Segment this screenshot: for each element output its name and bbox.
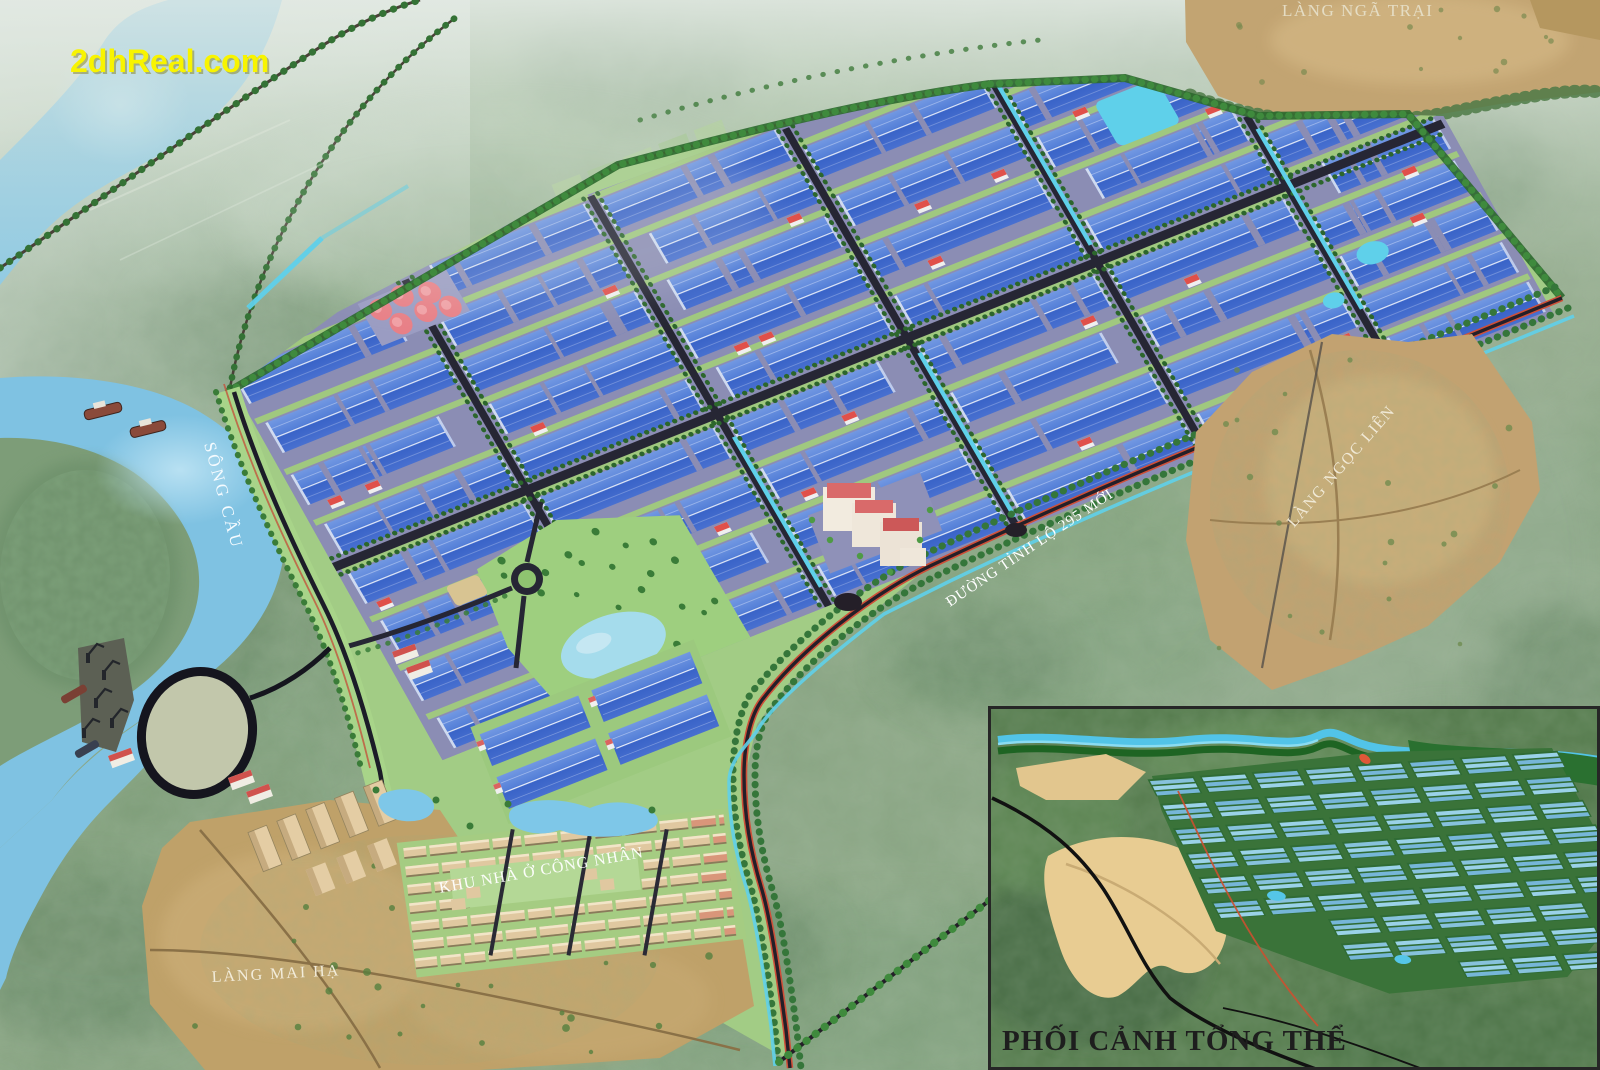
svg-text:PHỐI CẢNH TỔNG THỂ: PHỐI CẢNH TỔNG THỂ xyxy=(1002,1023,1347,1057)
svg-text:LÀNG NGÃ TRẠI: LÀNG NGÃ TRẠI xyxy=(1282,1,1433,20)
svg-text:2dhReal.com: 2dhReal.com xyxy=(70,43,269,79)
